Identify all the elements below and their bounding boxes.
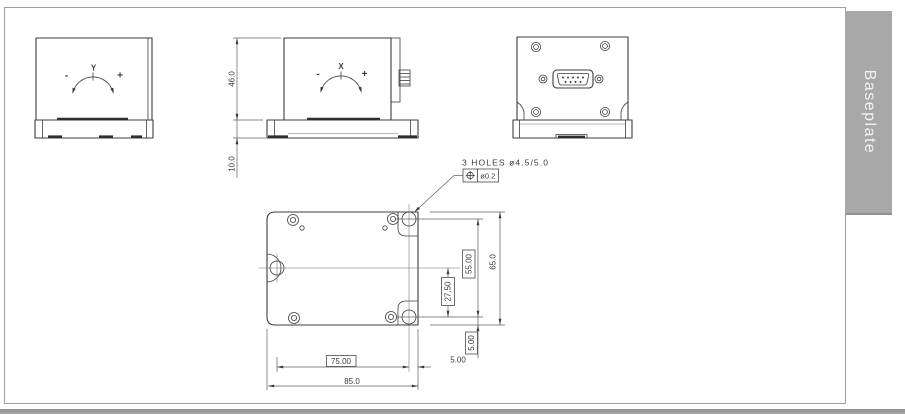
y-axis-rotation-indicator: Y - + (65, 64, 123, 94)
d-sub-connector (539, 70, 603, 88)
dim-body-height: 46.0 (228, 71, 237, 87)
minus-sign: - (316, 69, 319, 80)
counterbore-hole (288, 214, 399, 324)
baseplate-section-tab[interactable]: Baseplate (845, 11, 892, 215)
plus-sign: + (362, 69, 368, 80)
axis-label-x: X (338, 62, 344, 71)
bottom-view-vertical-dimensions: 27.50 55.00 65.0 5.00 (396, 212, 505, 358)
dim-holes-horizontal-span: 75.00 (331, 357, 352, 366)
holes-note: 3 HOLES ø4.5/5.0 (462, 158, 549, 168)
next-page-edge-bar (0, 409, 905, 414)
dim-holes-vertical-span: 55.00 (464, 253, 473, 274)
position-tolerance-value: ø0.2 (480, 171, 495, 180)
technical-drawing: Y - + (0, 0, 905, 414)
baseplate-tab-label: Baseplate (860, 70, 878, 155)
minus-sign: - (65, 71, 68, 82)
bottom-view: 27.50 55.00 65.0 5.00 (259, 158, 549, 391)
dim-base-height: 10.0 (228, 156, 237, 172)
dim-plate-width: 85.0 (344, 377, 360, 386)
dim-hole-to-edge-horizontal: 5.00 (450, 356, 466, 365)
bottom-view-horizontal-dimensions: 75.00 5.00 85.0 (267, 329, 466, 390)
connector-pins (562, 77, 584, 84)
corner-screw (531, 41, 609, 116)
dim-hole-to-edge-vertical: 5.00 (467, 335, 476, 351)
rear-view (513, 37, 632, 138)
plus-sign: + (117, 71, 123, 82)
holes-callout: 3 HOLES ø4.5/5.0 ø0.2 (415, 158, 550, 213)
x-axis-rotation-indicator: X - + (316, 62, 367, 93)
dim-plate-height: 65.0 (489, 254, 498, 270)
front-view: Y - + (35, 38, 153, 138)
drawing-page: Y - + (0, 0, 905, 414)
side-view-dimensions: 46.0 10.0 (228, 38, 282, 178)
adjustment-knob (399, 70, 410, 86)
axis-label-y: Y (91, 64, 97, 73)
side-view: X - + 46.0 10.0 (228, 38, 419, 178)
dim-center-to-hole: 27.50 (444, 281, 453, 302)
